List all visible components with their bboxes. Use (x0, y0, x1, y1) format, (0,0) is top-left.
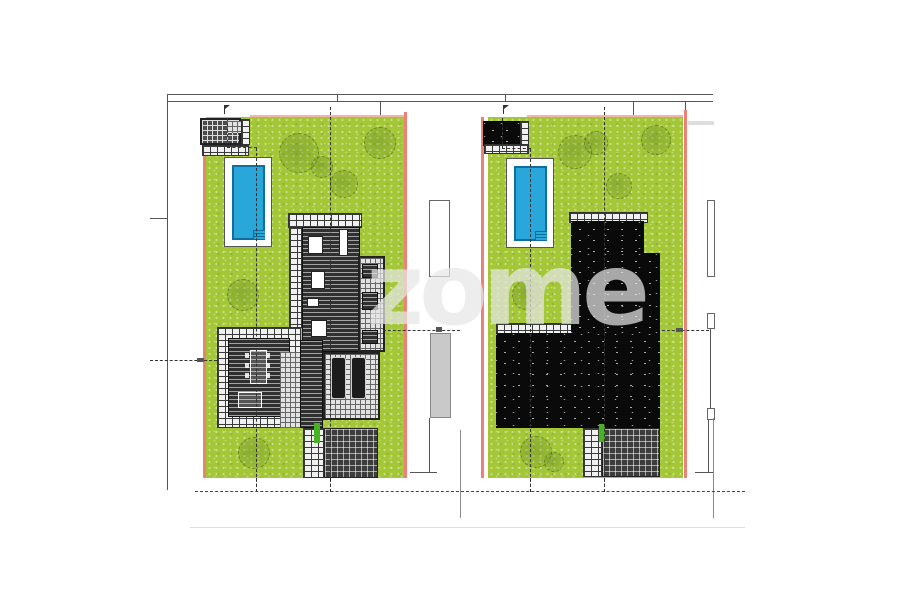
chair-icon (266, 363, 270, 368)
neighbor-outline-line (695, 472, 714, 473)
neighbor-outline-line (410, 472, 437, 473)
chair-icon (245, 353, 249, 358)
centerline-extension (330, 478, 332, 492)
neighbor-outline-line (710, 329, 711, 408)
left-margin-line (167, 94, 168, 490)
skylight (311, 320, 327, 337)
pool-steps (253, 230, 265, 239)
site-plan-drawing: zome (0, 0, 900, 597)
chair-icon (245, 373, 249, 378)
left-entrance-paving (241, 119, 250, 145)
left-walkway-grid (280, 352, 300, 428)
left-walkway-deck (300, 340, 323, 428)
tree-icon (227, 279, 259, 311)
right-lot-boundary-east (684, 110, 687, 478)
dimension-dashed-line (662, 330, 709, 332)
rear-boundary-dashed-line (195, 491, 745, 492)
street-tick (337, 94, 338, 102)
centerline-extension (256, 478, 258, 492)
left-lot-boundary-west (203, 154, 206, 478)
left-margin-tick (150, 218, 167, 219)
neighbor-outline-line (429, 418, 430, 473)
left-lot-boundary-top (250, 115, 404, 117)
skylight (308, 236, 323, 254)
pool-water (232, 165, 265, 240)
sun-lounger-icon (351, 357, 366, 399)
chair-icon (245, 363, 249, 368)
dining-table-icon (250, 350, 267, 384)
lot-centerline (330, 107, 332, 492)
street-line-top (167, 94, 713, 95)
right-driveway (602, 428, 660, 477)
dimension-arrow (676, 328, 683, 332)
setback-dashed-line (502, 148, 531, 150)
tree-icon (238, 437, 270, 469)
setback-dashed-line (502, 118, 504, 149)
centerline-extension (604, 478, 606, 492)
left-driveway (324, 428, 378, 478)
street-tick (505, 94, 506, 102)
setback-dashed-line (256, 148, 258, 492)
neighbor-outline (707, 313, 715, 329)
street-line-bottom (167, 101, 713, 102)
left-entrance-cell (227, 121, 241, 133)
lounge-set-icon (238, 392, 262, 408)
neighbor-outline-line (708, 420, 709, 472)
chair-icon (266, 353, 270, 358)
faint-reference-line (190, 527, 745, 528)
dimension-dashed-line (150, 360, 217, 362)
tree-icon (364, 127, 396, 159)
skylight (307, 298, 319, 307)
dimension-arrow (197, 358, 204, 362)
skylight (311, 271, 325, 289)
tree-icon (544, 452, 564, 472)
survey-flag-icon (503, 105, 504, 114)
pavement-strip (688, 121, 714, 125)
survey-flag-icon (224, 105, 225, 114)
watermark: zome (366, 240, 645, 340)
chair-icon (266, 373, 270, 378)
left-house-paving-west (289, 227, 302, 328)
left-house-paving-top (288, 213, 362, 228)
gate-marker (314, 423, 320, 443)
neighbor-outline (707, 200, 715, 277)
skylight (339, 229, 348, 256)
centerline-extension (530, 478, 532, 492)
tree-icon (641, 125, 671, 155)
boundary-extension-line (713, 418, 714, 518)
tree-icon (606, 173, 632, 199)
setback-dashed-line (227, 147, 257, 149)
setback-dashed-line (227, 118, 229, 148)
sun-lounger-icon (331, 357, 346, 399)
tree-icon (330, 170, 358, 198)
boundary-extension-line (460, 430, 461, 518)
